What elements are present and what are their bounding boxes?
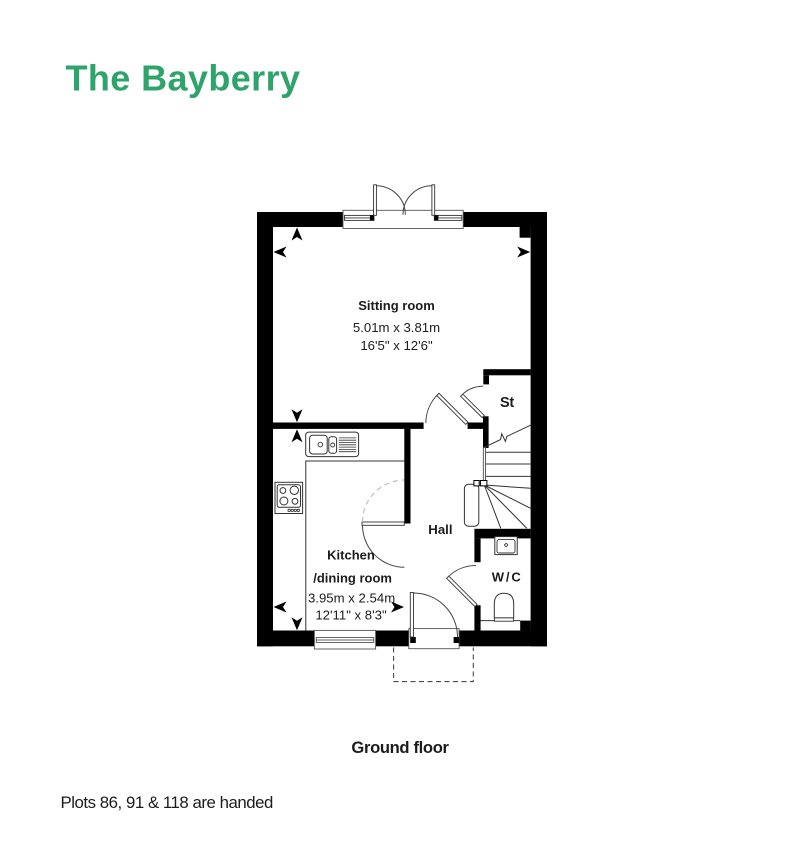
svg-text:W/C: W/C [492, 569, 523, 584]
svg-text:12'11" x 8'3": 12'11" x 8'3" [315, 608, 387, 623]
svg-text:The Bayberry: The Bayberry [66, 58, 301, 99]
svg-text:Sitting room: Sitting room [358, 298, 435, 313]
svg-text:/dining room: /dining room [313, 570, 392, 585]
svg-text:Kitchen: Kitchen [327, 547, 375, 562]
svg-text:16'5" x 12'6": 16'5" x 12'6" [360, 338, 433, 353]
svg-text:Plots 86, 91 & 118 are handed: Plots 86, 91 & 118 are handed [61, 793, 274, 812]
svg-text:3.95m x 2.54m: 3.95m x 2.54m [308, 591, 395, 606]
svg-text:Ground floor: Ground floor [351, 738, 449, 757]
svg-text:St: St [500, 395, 514, 411]
svg-text:Hall: Hall [428, 522, 452, 537]
svg-text:5.01m x 3.81m: 5.01m x 3.81m [353, 320, 440, 335]
